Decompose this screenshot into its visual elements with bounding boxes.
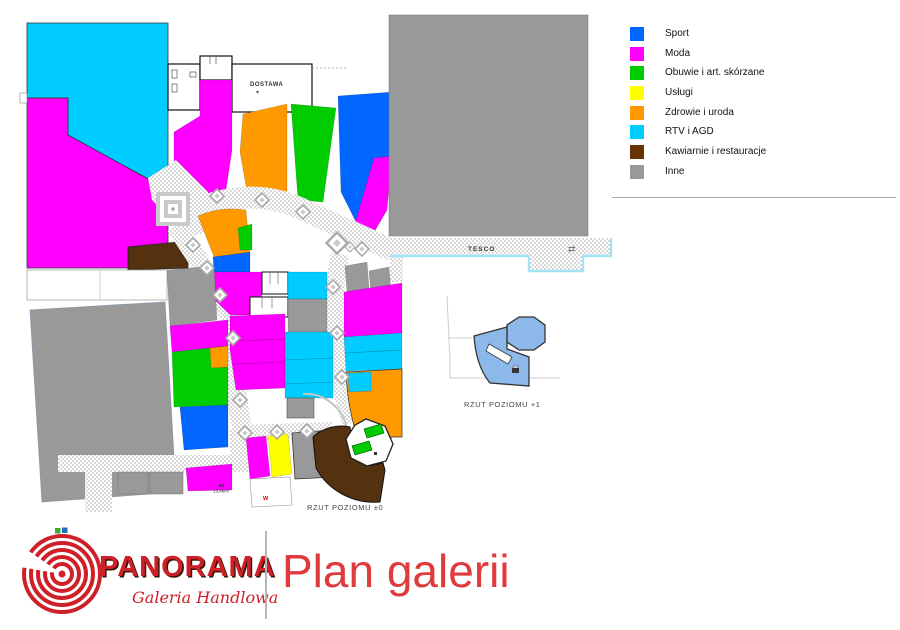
wall-tick xyxy=(20,93,27,103)
unit-sport-block xyxy=(180,405,228,450)
corridor-stub xyxy=(390,257,403,282)
unit-moda-right xyxy=(344,283,402,337)
unit-uslugi-bc xyxy=(268,434,292,477)
room-white-bc xyxy=(250,477,292,507)
level1-mark2 xyxy=(513,366,518,368)
mall-plan-page: DOSTAWA W TESCO ⇄ xyxy=(0,0,900,630)
legend-swatch-moda xyxy=(630,47,644,61)
unit-zdrowie-arc xyxy=(240,104,287,197)
unit-inne-stub2 xyxy=(150,472,183,494)
level1-caption: RZUT POZIOMU +1 xyxy=(464,400,541,409)
legend-swatch-uslugi xyxy=(630,86,644,100)
room-wc-center xyxy=(262,272,288,294)
unit-inne-small xyxy=(287,398,314,418)
brand-name: PANORAMA xyxy=(99,551,276,584)
rotunda-mark xyxy=(374,452,377,455)
unit-number: 80 xyxy=(219,483,225,488)
legend-label: Usługi xyxy=(665,88,693,98)
legend-item-obuwie: Obuwie i art. skórzane xyxy=(630,63,896,83)
unit-white-band xyxy=(27,270,167,300)
legend-separator xyxy=(612,197,896,198)
corridor-stub-south xyxy=(85,472,112,512)
unit-moda-bc xyxy=(246,436,270,479)
legend-item-inne: Inne xyxy=(630,162,896,182)
tesco-label: TESCO xyxy=(468,246,495,253)
panorama-logo xyxy=(20,527,108,621)
logo-blue-square-icon xyxy=(62,528,68,534)
unit-inne-r1 xyxy=(345,262,369,292)
unit-obuwie-arc xyxy=(291,104,336,202)
legend-item-uslugi: Usługi xyxy=(630,83,896,103)
plan-shape xyxy=(172,208,175,211)
legend-item-zdrowie: Zdrowie i uroda xyxy=(630,103,896,123)
legend-label: Inne xyxy=(665,167,684,177)
level0-caption: RZUT POZIOMU ±0 xyxy=(307,503,383,512)
legend-item-rtv: RTV i AGD xyxy=(630,122,896,142)
unit-inne-mid xyxy=(167,266,217,326)
unit-rtv-right xyxy=(344,333,402,371)
floor-spiral xyxy=(156,192,190,226)
legend-swatch-zdrowie xyxy=(630,106,644,120)
unit-rtv-center2 xyxy=(285,332,333,398)
legend-label: Obuwie i art. skórzane xyxy=(665,68,765,78)
exit-arrow-icon: ⇄ xyxy=(568,244,576,254)
unit-obuwie-small xyxy=(238,224,252,250)
legend-label: Zdrowie i uroda xyxy=(665,108,734,118)
dostawa-label: DOSTAWA xyxy=(250,82,284,88)
legend-label: Sport xyxy=(665,29,689,39)
floor-plan: DOSTAWA W TESCO ⇄ xyxy=(0,0,630,520)
legend-item-sport: Sport xyxy=(630,24,896,44)
plan-shape xyxy=(59,571,66,578)
unit-rtv-tiny xyxy=(348,372,371,392)
legend-swatch-sport xyxy=(630,27,644,41)
logo-rings-icon xyxy=(20,536,100,612)
unit-tesco xyxy=(389,15,588,236)
unit-zdrowie-notch xyxy=(210,346,228,368)
legend-label: RTV i AGD xyxy=(665,127,714,137)
unit-inne-stub1 xyxy=(118,472,148,494)
legend-swatch-rtv xyxy=(630,125,644,139)
legend-label: Kawiarnie i restauracje xyxy=(665,147,766,157)
legend-label: Moda xyxy=(665,49,690,59)
footer-divider xyxy=(265,531,267,619)
level1-mark xyxy=(512,368,519,373)
logo-green-square-icon xyxy=(55,528,61,534)
legend-swatch-obuwie xyxy=(630,66,644,80)
room-wc xyxy=(168,64,200,110)
page-title: Plan galerii xyxy=(282,544,510,599)
legend-item-kawiarnie: Kawiarnie i restauracje xyxy=(630,142,896,162)
unit-area: 13,46m² xyxy=(213,489,230,494)
legend-swatch-kawiarnie xyxy=(630,145,644,159)
unit-rtv-center xyxy=(288,272,327,299)
level1-octagon xyxy=(507,317,545,350)
brand-tagline: Galeria Handlowa xyxy=(132,588,278,607)
wc-marker-2: W xyxy=(263,496,269,502)
unit-moda-sw xyxy=(186,464,232,491)
unit-inne-center xyxy=(288,299,327,332)
legend-item-moda: Moda xyxy=(630,44,896,64)
legend-swatch-inne xyxy=(630,165,644,179)
unit-moda-stack xyxy=(230,314,285,390)
legend: SportModaObuwie i art. skórzaneUsługiZdr… xyxy=(630,24,896,182)
